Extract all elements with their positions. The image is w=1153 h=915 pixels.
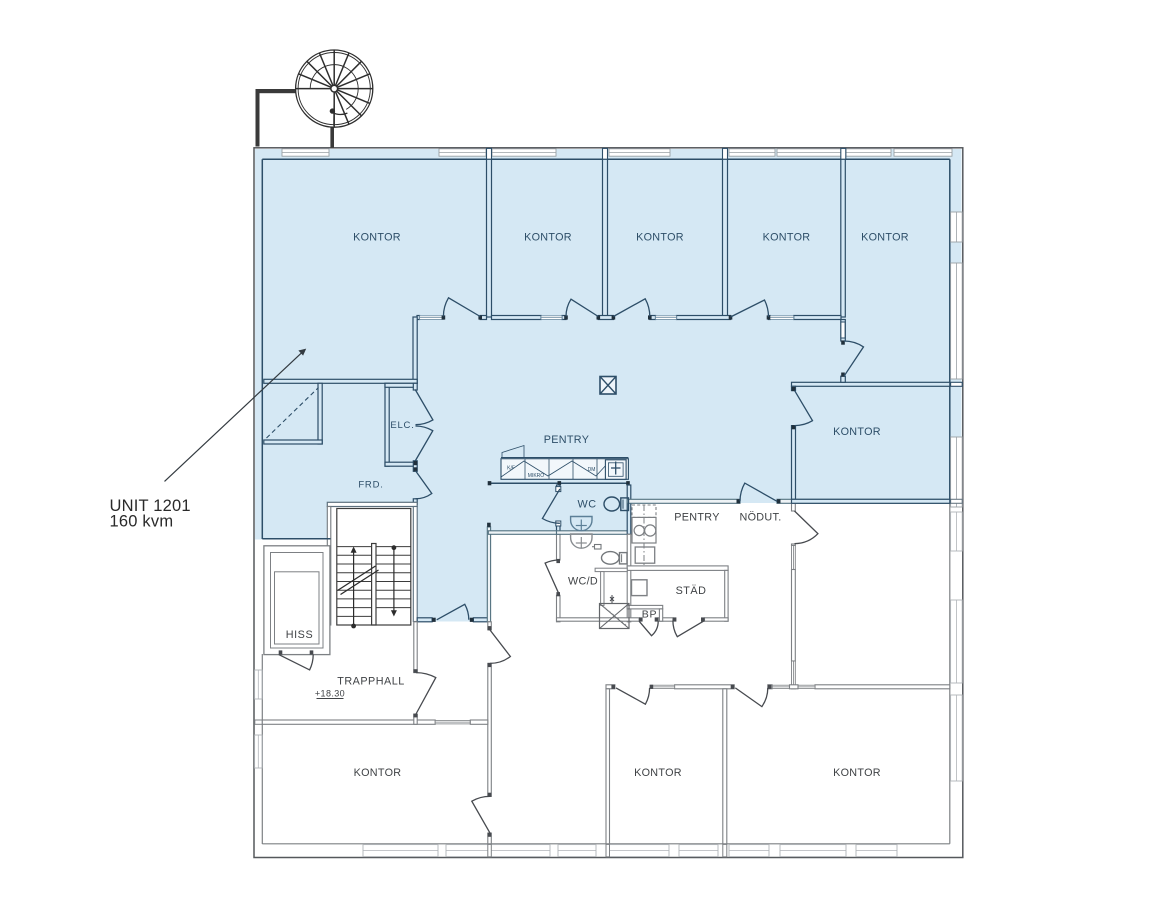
svg-text:ELC.: ELC.: [390, 420, 414, 431]
svg-text:TRAPPHALL: TRAPPHALL: [337, 676, 405, 688]
svg-text:KONTOR: KONTOR: [354, 767, 402, 779]
svg-text:+18.30: +18.30: [315, 689, 345, 699]
svg-text:KONTOR: KONTOR: [353, 232, 401, 244]
svg-text:KONTOR: KONTOR: [861, 232, 909, 244]
svg-text:KONTOR: KONTOR: [636, 232, 684, 244]
svg-text:KONTOR: KONTOR: [634, 767, 682, 779]
svg-text:KONTOR: KONTOR: [833, 426, 881, 438]
svg-text:BP: BP: [642, 609, 658, 621]
svg-text:DM: DM: [588, 467, 596, 473]
svg-text:160 kvm: 160 kvm: [110, 513, 174, 531]
svg-text:HISS: HISS: [286, 629, 314, 641]
svg-text:KONTOR: KONTOR: [524, 232, 572, 244]
svg-text:K/F: K/F: [507, 466, 515, 472]
svg-text:KONTOR: KONTOR: [763, 232, 811, 244]
svg-text:PENTRY: PENTRY: [544, 434, 589, 446]
svg-text:MIKRO: MIKRO: [528, 473, 545, 479]
svg-text:STÄD: STÄD: [676, 585, 707, 597]
svg-text:WC: WC: [578, 499, 597, 511]
svg-text:NÖDUT.: NÖDUT.: [740, 512, 782, 524]
svg-text:KONTOR: KONTOR: [833, 767, 881, 779]
svg-text:PENTRY: PENTRY: [674, 512, 719, 524]
svg-text:FRD.: FRD.: [358, 480, 383, 491]
svg-text:WC/D: WC/D: [568, 576, 598, 588]
